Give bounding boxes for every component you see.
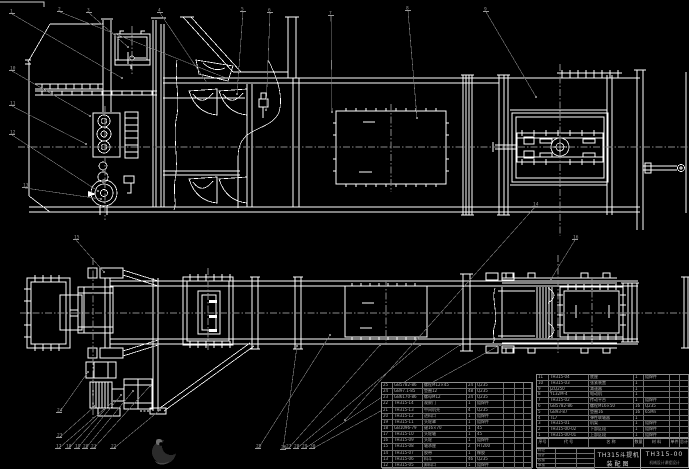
balloon-label: 25 — [256, 444, 262, 450]
balloon-label: 15 — [74, 235, 80, 241]
balloon-label: 21 — [91, 444, 97, 450]
balloon-label: 24 — [57, 408, 63, 414]
parts-cell — [515, 463, 524, 469]
org-line: 机械设计课程设计 — [641, 460, 688, 466]
leader-dot — [127, 46, 129, 48]
belt-lines — [247, 84, 252, 207]
leader-dot — [100, 198, 102, 200]
leader-dot — [159, 409, 161, 411]
leader-line — [283, 346, 297, 450]
leader-dot — [94, 405, 96, 407]
leader-dot — [97, 190, 99, 192]
leader-line — [85, 391, 133, 449]
balloon-label: 17 — [56, 444, 62, 450]
leader-line — [59, 372, 88, 413]
parts-list-right: 11TH315-04底座1组焊件10TH315-03张紧装置19JZQ250减速… — [536, 374, 689, 438]
boot-section — [493, 70, 686, 230]
bucket — [219, 177, 247, 203]
watermark-icon — [152, 437, 180, 465]
bucket — [219, 89, 247, 115]
balloon-label: 11 — [10, 101, 16, 107]
parts-list-header: 序号代 号名 称数量材 料单件总计备注 — [536, 438, 689, 448]
parts-cell: 材 料 — [644, 439, 670, 448]
sign-cell — [556, 464, 577, 469]
balloon-label: 2 — [58, 7, 61, 13]
head-casing-outline — [25, 18, 640, 212]
balloon-label: 29 — [302, 444, 308, 450]
leader-dot — [331, 111, 333, 113]
parts-cell: 卸料口 — [423, 463, 467, 469]
leader-line — [237, 12, 243, 94]
head-panel — [115, 31, 150, 69]
leader-line — [89, 13, 128, 47]
leader-dot — [296, 345, 298, 347]
parts-cell: 单件 — [670, 439, 680, 448]
support-brace — [160, 343, 254, 411]
signature-grid: 标记设计校核审核 — [537, 449, 597, 469]
parts-cell: 代 号 — [549, 439, 589, 448]
product-title: TH315斗提机 — [597, 450, 640, 459]
leader-dot — [416, 117, 418, 119]
drawing-number-cell: TH315-00 机械设计课程设计 — [641, 449, 688, 469]
balloon-label: 6 — [268, 8, 271, 14]
leader-dot — [120, 394, 122, 396]
parts-cell: 1 — [467, 463, 476, 469]
leader-dot — [112, 400, 114, 402]
leader-line — [288, 345, 380, 449]
parts-cell: 总计 — [680, 439, 689, 448]
shaft-block — [86, 362, 116, 378]
balloon-label: 9 — [484, 7, 487, 13]
balloon-label: 20 — [83, 444, 89, 450]
parts-cell — [524, 463, 532, 469]
leader-dot — [550, 278, 552, 280]
balloon-label: 3 — [87, 8, 90, 14]
drawing-number: TH315-00 — [641, 451, 688, 458]
center-lines — [18, 26, 689, 420]
leader-line — [76, 240, 104, 272]
parts-cell: 名 称 — [589, 439, 634, 448]
balloon-label: 16 — [573, 235, 579, 241]
leader-dot — [206, 82, 208, 84]
balloon-label: 28 — [294, 444, 300, 450]
leader-dot — [103, 271, 105, 273]
balloon-label: 19 — [75, 444, 81, 450]
parts-cell: 组焊件 — [476, 463, 504, 469]
leader-dot — [89, 115, 91, 117]
balloon-label: 5 — [241, 7, 244, 13]
leader-line — [60, 12, 226, 78]
break-line — [238, 60, 281, 208]
balloon-label: 27 — [286, 444, 292, 450]
upper-view — [25, 17, 686, 230]
balloon-label: 30 — [310, 444, 316, 450]
leader-dot — [459, 344, 461, 346]
leader-line — [266, 13, 270, 110]
break-line — [174, 60, 178, 210]
leader-line — [551, 240, 575, 279]
cad-canvas: { "meta": { "background": "#000000", "li… — [0, 0, 689, 468]
parts-cell: 12 — [382, 463, 393, 469]
parts-cell: 序号 — [537, 439, 549, 448]
parts-list-left: 25GB5782-86螺栓M12×4524Q23524GB97.1-85垫圈12… — [381, 382, 533, 468]
parts-cell: 数量 — [634, 439, 644, 448]
flange-plan — [460, 274, 473, 351]
leader-dot — [87, 371, 89, 373]
leader-line — [12, 106, 86, 144]
leader-dot — [419, 344, 421, 346]
leader-line — [408, 11, 417, 118]
balloon-label: 23 — [57, 433, 63, 439]
balloon-label: 12 — [10, 130, 16, 136]
title-cell: TH315斗提机 装配图 — [597, 449, 641, 469]
balloon-label: 7 — [329, 11, 332, 17]
motor-base — [98, 408, 120, 416]
leader-line — [258, 335, 330, 449]
bucket — [189, 89, 217, 115]
leader-dot — [236, 93, 238, 95]
parts-cell: TH315-05 — [393, 463, 423, 469]
casing-rails — [163, 78, 640, 175]
leader-dot — [499, 344, 501, 346]
bucket — [189, 177, 217, 203]
sign-label: 审核 — [537, 464, 556, 469]
balloon-label: 13 — [23, 183, 29, 189]
balloon-label: 22 — [111, 444, 117, 450]
sheet-name: 装配图 — [597, 459, 640, 468]
balloon-label: 1 — [10, 9, 13, 15]
leader-dot — [132, 390, 134, 392]
leader-line — [331, 16, 332, 112]
leader-line — [12, 71, 90, 116]
leader-dot — [121, 77, 123, 79]
balloon-label: 4 — [158, 8, 161, 14]
gearbox-plan — [124, 379, 152, 409]
leader-line — [160, 13, 207, 83]
leader-dot — [225, 77, 227, 79]
discharge-flange — [35, 84, 157, 95]
casing-divider — [293, 78, 299, 207]
balloon-label: 18 — [66, 444, 72, 450]
parts-cell — [504, 463, 515, 469]
leader-line — [486, 12, 536, 97]
leader-dot — [149, 385, 151, 387]
coupling-plan — [112, 389, 124, 401]
leader-dot — [379, 344, 381, 346]
sign-cell — [577, 464, 595, 469]
leader-dot — [535, 96, 537, 98]
balloon-label: 10 — [10, 66, 16, 72]
sheet-frame — [0, 2, 44, 7]
balloon-label: 14 — [533, 202, 539, 208]
break-line — [493, 288, 496, 343]
bearing-supports — [88, 268, 166, 414]
leader-line — [58, 409, 104, 449]
leader-dot — [344, 419, 346, 421]
leader-dot — [329, 334, 331, 336]
flange-joint — [461, 75, 474, 215]
leader-dot — [85, 143, 87, 145]
title-block: 标记设计校核审核 TH315斗提机 装配图 TH315-00 机械设计课程设计 — [536, 448, 689, 468]
leader-dot — [265, 109, 267, 111]
balloon-label: 8 — [406, 6, 409, 12]
